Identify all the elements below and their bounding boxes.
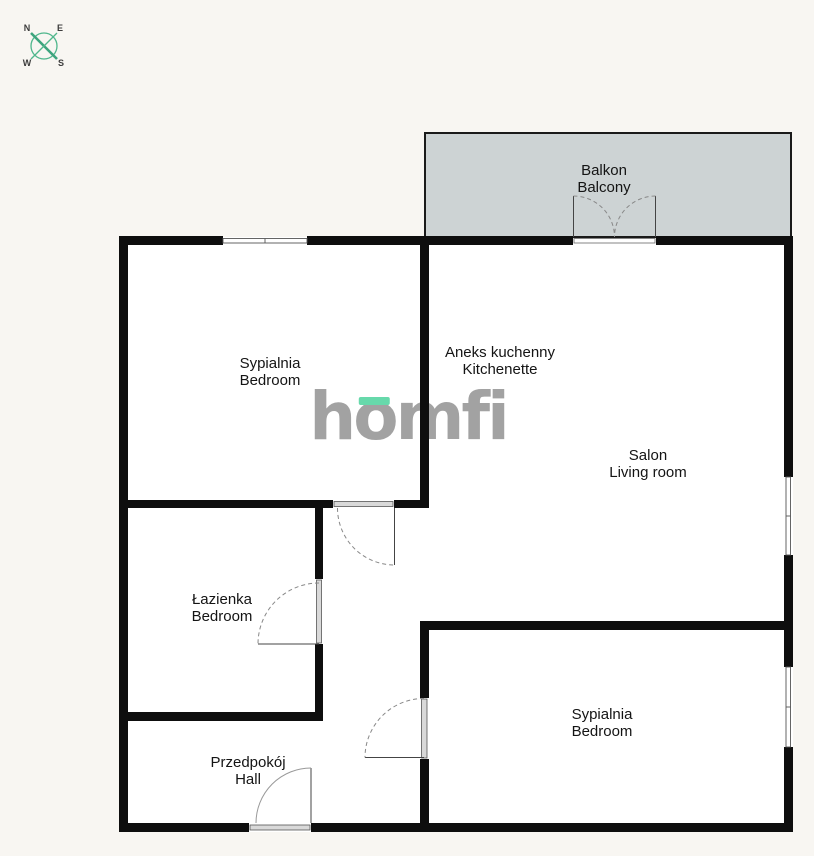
- room-name-pl: Sypialnia: [240, 355, 301, 372]
- room-name-en: Bedroom: [240, 372, 301, 389]
- room-name-en: Bedroom: [572, 723, 633, 740]
- room-label-bathroom: Łazienka Bedroom: [192, 591, 253, 625]
- windows: [223, 239, 791, 748]
- room-name-pl: Przedpokój: [210, 754, 285, 771]
- room-name-en: Balcony: [577, 179, 630, 196]
- window-bedroom-top: [223, 239, 307, 244]
- compass-label-e: E: [57, 23, 63, 33]
- walls: [119, 236, 793, 832]
- wall-bathroom-top-b: [394, 500, 429, 508]
- wall-bathroom-right-b: [315, 644, 323, 712]
- wall-kitchen-divider: [420, 236, 429, 508]
- wall-bedroom2-top: [420, 621, 786, 630]
- wall-right-a: [784, 236, 793, 477]
- room-name-en: Living room: [609, 464, 687, 481]
- door-bathroom: [258, 580, 322, 644]
- room-label-bedroom-bottom: Sypialnia Bedroom: [572, 706, 633, 740]
- window-living-room: [786, 477, 791, 555]
- window-bedroom-bottom: [786, 667, 791, 747]
- room-name-pl: Salon: [629, 447, 667, 464]
- room-name-pl: Sypialnia: [572, 706, 633, 723]
- wall-top-b: [307, 236, 573, 245]
- room-label-living-room: Salon Living room: [609, 447, 687, 481]
- room-name-pl: Balkon: [581, 162, 627, 179]
- door-bedroom-top: [334, 502, 395, 566]
- room-name-en: Bedroom: [192, 608, 253, 625]
- room-name-pl: Aneks kuchenny: [445, 344, 555, 361]
- compass-label-s: S: [58, 58, 64, 68]
- wall-bathroom-bottom: [119, 712, 323, 721]
- room-name-en: Kitchenette: [462, 361, 537, 378]
- wall-bedroom2-left-a: [420, 621, 429, 698]
- wall-right-b: [784, 555, 793, 667]
- wall-bathroom-right-a: [315, 500, 323, 579]
- wall-bathroom-top-a: [119, 500, 333, 508]
- floor-plan: N E W S h o mfi: [0, 0, 814, 856]
- room-name-pl: Łazienka: [192, 591, 252, 608]
- compass-label-w: W: [23, 58, 32, 68]
- room-label-bedroom-top: Sypialnia Bedroom: [240, 355, 301, 389]
- room-label-balcony: Balkon Balcony: [577, 162, 630, 196]
- compass-label-n: N: [24, 23, 31, 33]
- wall-top-c: [656, 236, 793, 245]
- room-name-en: Hall: [235, 771, 261, 788]
- room-label-hall: Przedpokój Hall: [210, 754, 285, 788]
- wall-bedroom2-left-b: [420, 759, 429, 823]
- wall-bottom-b: [311, 823, 793, 832]
- wall-right-c: [784, 747, 793, 832]
- room-label-kitchenette: Aneks kuchenny Kitchenette: [445, 344, 555, 378]
- wall-bottom-a: [119, 823, 249, 832]
- wall-top-a: [119, 236, 223, 245]
- wall-left: [119, 236, 128, 832]
- door-bedroom-bottom: [365, 699, 427, 759]
- compass-icon: N E W S: [14, 16, 74, 76]
- floor-plan-drawing: [0, 0, 814, 856]
